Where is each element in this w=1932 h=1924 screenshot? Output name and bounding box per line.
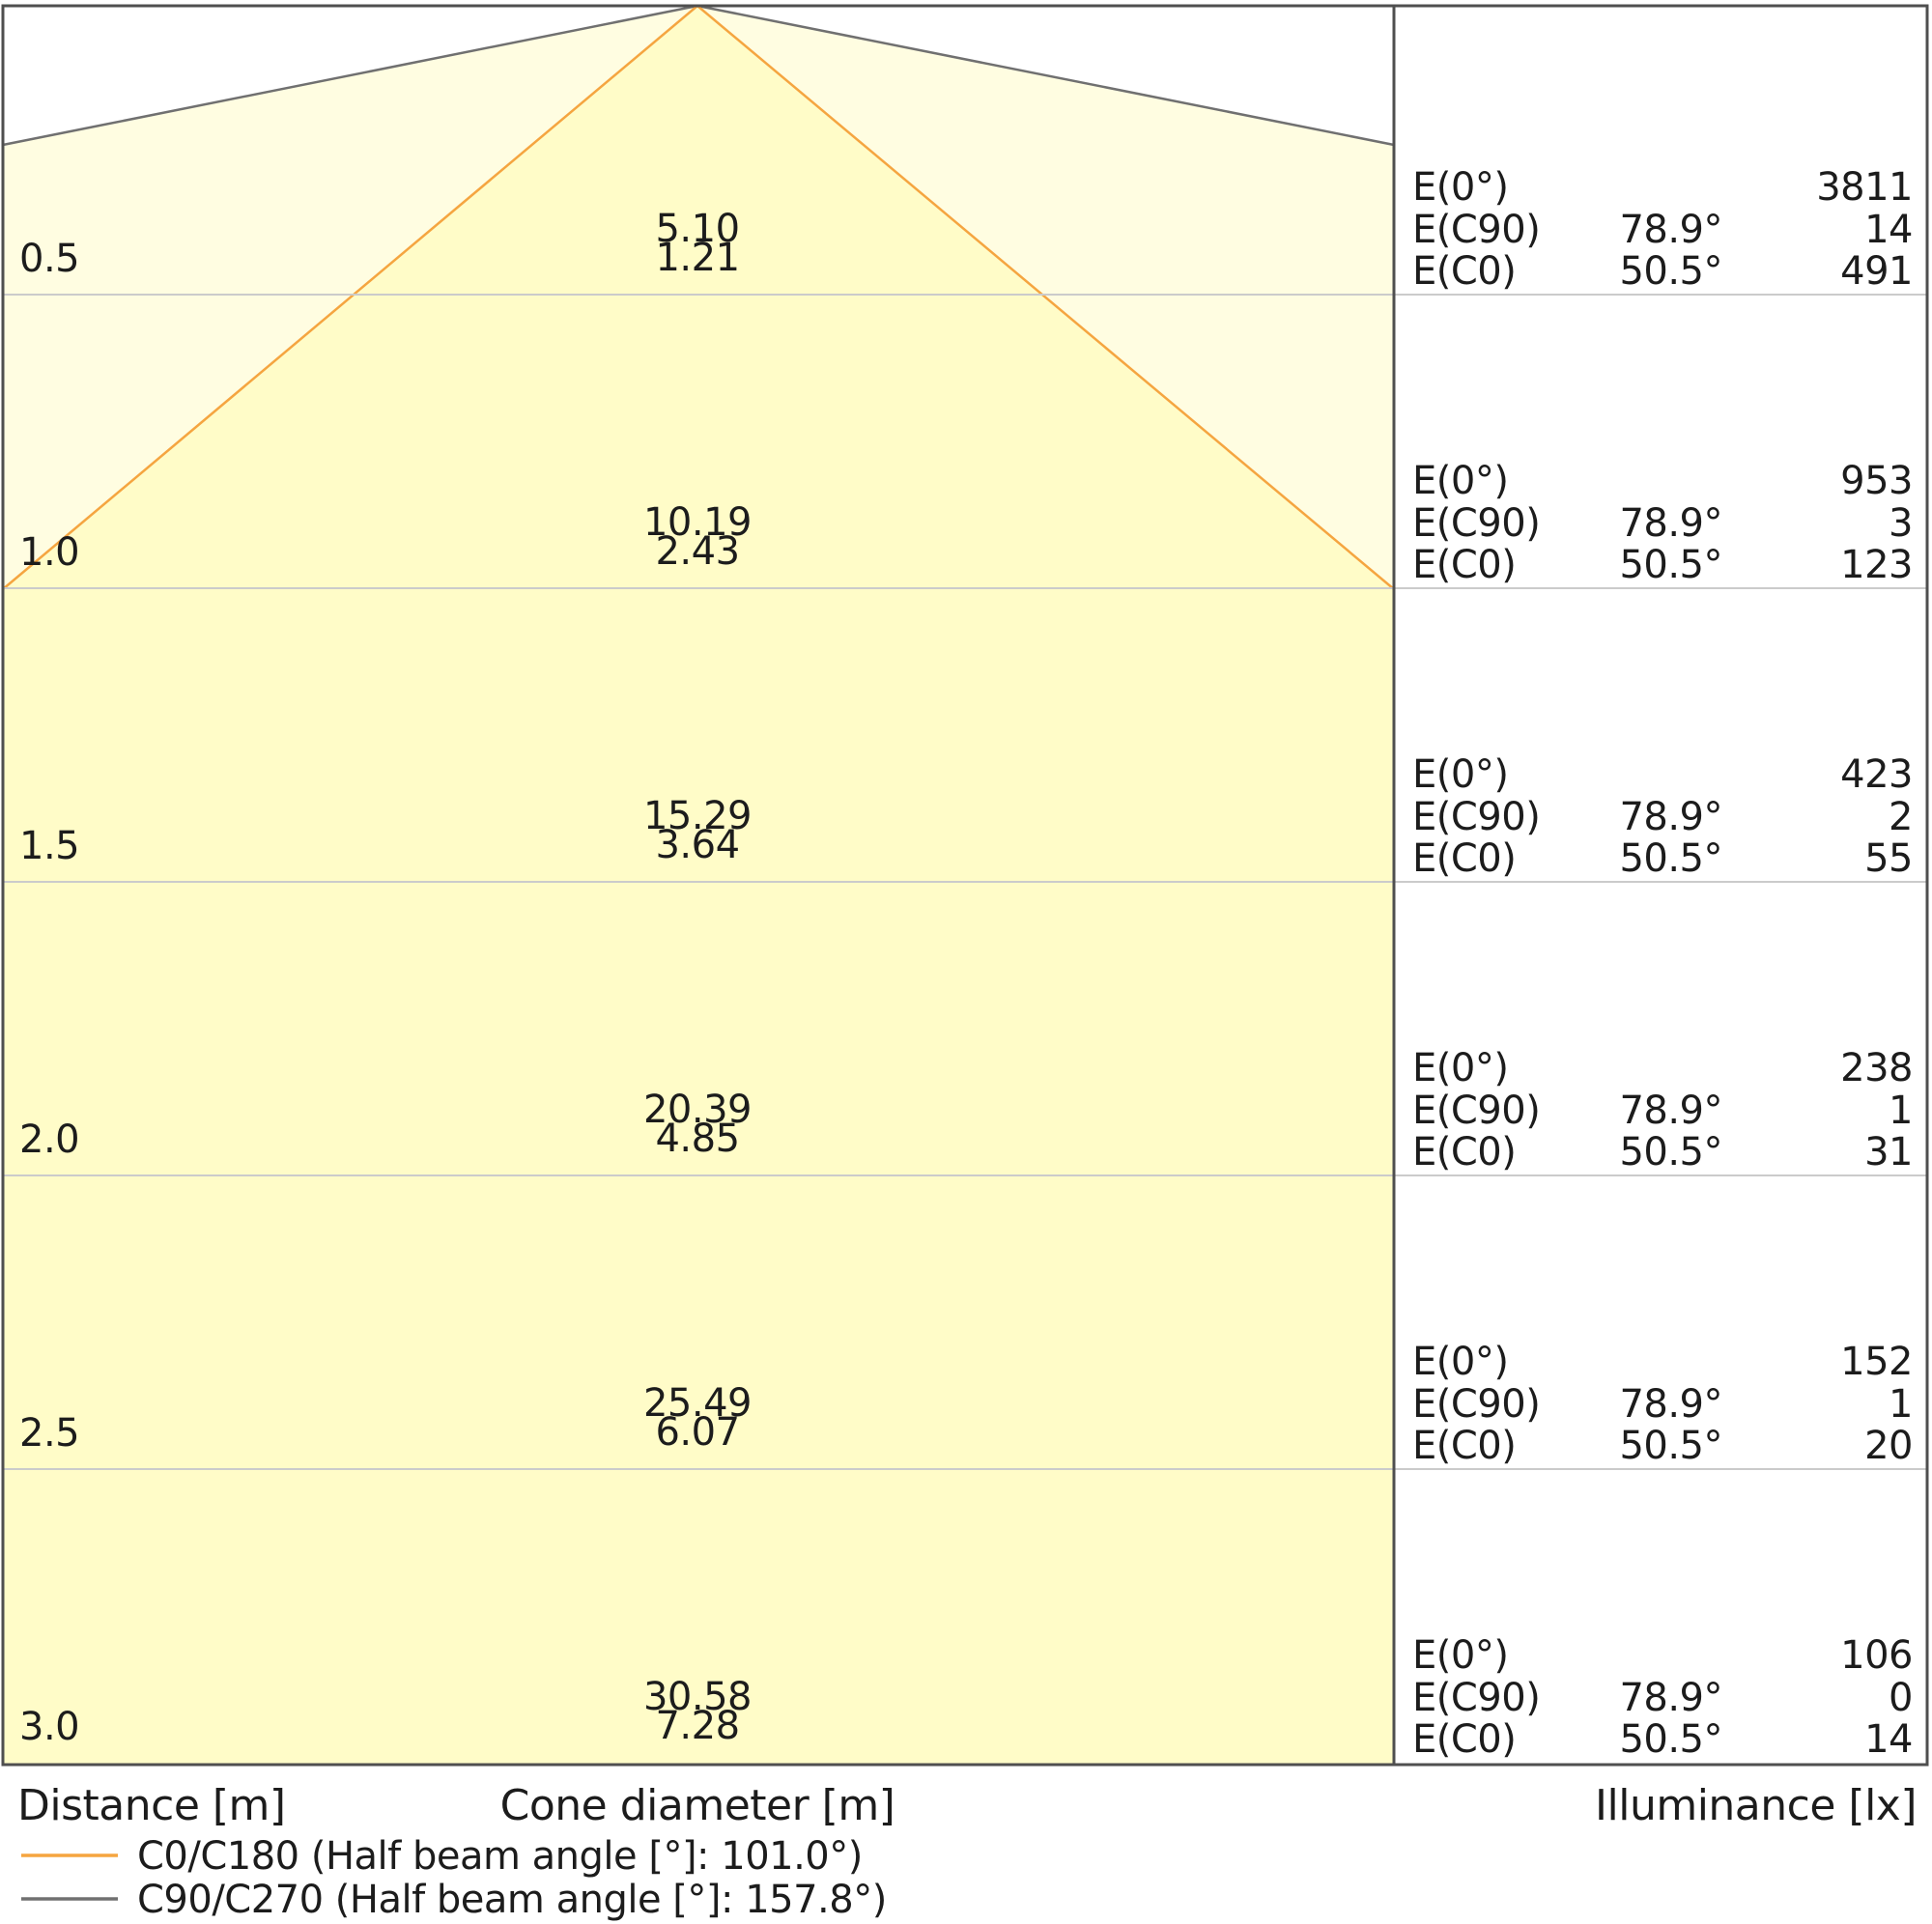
cone-diagram-canvas: 0.5 5.10 1.21 E(0°) 3811 E(C90) 78.9° 14… <box>0 0 1932 1924</box>
c0-legend-label: C0/C180 (Half beam angle [°]: 101.0°) <box>137 1834 863 1879</box>
cone-diameter-c0-value: 3.64 <box>655 823 739 867</box>
ec0-value: 491 <box>1840 249 1913 294</box>
distance-label: 1.0 <box>19 530 79 575</box>
e0-label: E(0°) <box>1412 752 1508 797</box>
ec90-label: E(C90) <box>1412 795 1540 839</box>
e0-value: 423 <box>1840 752 1913 797</box>
e0-label: E(0°) <box>1412 1046 1508 1090</box>
cone-diameter-c0-value: 7.28 <box>655 1704 739 1748</box>
ec90-angle: 78.9° <box>1619 1382 1722 1427</box>
e0-value: 238 <box>1840 1046 1913 1090</box>
ec90-label: E(C90) <box>1412 1382 1540 1427</box>
ec0-value: 31 <box>1864 1130 1913 1174</box>
legend: C0/C180 (Half beam angle [°]: 101.0°) C9… <box>21 1834 887 1922</box>
ec0-angle: 50.5° <box>1619 836 1722 881</box>
distance-label: 1.5 <box>19 824 79 868</box>
ec0-label: E(C0) <box>1412 249 1516 294</box>
ec0-value: 55 <box>1864 836 1913 881</box>
ec0-label: E(C0) <box>1412 836 1516 881</box>
ec0-label: E(C0) <box>1412 1717 1516 1762</box>
ec0-value: 14 <box>1864 1717 1913 1762</box>
distance-label: 3.0 <box>19 1705 79 1749</box>
ec90-label: E(C90) <box>1412 208 1540 252</box>
ec90-angle: 78.9° <box>1619 501 1722 546</box>
ec0-angle: 50.5° <box>1619 1130 1722 1174</box>
cone-diameter-c0-value: 6.07 <box>655 1410 739 1455</box>
ec0-angle: 50.5° <box>1619 1424 1722 1468</box>
distance-axis-label: Distance [m] <box>17 1781 286 1830</box>
ec90-label: E(C90) <box>1412 1089 1540 1133</box>
ec90-angle: 78.9° <box>1619 1089 1722 1133</box>
distance-label: 0.5 <box>19 237 79 281</box>
ec0-angle: 50.5° <box>1619 543 1722 587</box>
c90-legend-label: C90/C270 (Half beam angle [°]: 157.8°) <box>137 1878 887 1922</box>
distance-label: 2.5 <box>19 1411 79 1456</box>
ec90-label: E(C90) <box>1412 501 1540 546</box>
illuminance-axis-label: Illuminance [lx] <box>1595 1781 1917 1830</box>
light-cone-diagram: 0.5 5.10 1.21 E(0°) 3811 E(C90) 78.9° 14… <box>0 0 1932 1924</box>
ec90-value: 3 <box>1889 501 1913 546</box>
distance-label: 2.0 <box>19 1118 79 1162</box>
e0-label: E(0°) <box>1412 1633 1508 1678</box>
cone-diameter-c0-value: 1.21 <box>655 236 739 280</box>
ec90-value: 14 <box>1864 208 1913 252</box>
e0-value: 3811 <box>1816 165 1913 210</box>
ec90-value: 0 <box>1889 1676 1913 1720</box>
ec90-label: E(C90) <box>1412 1676 1540 1720</box>
ec90-value: 1 <box>1889 1089 1913 1133</box>
e0-label: E(0°) <box>1412 1340 1508 1384</box>
ec90-value: 1 <box>1889 1382 1913 1427</box>
cone-diameter-c0-value: 4.85 <box>655 1117 739 1161</box>
e0-value: 106 <box>1840 1633 1913 1678</box>
e0-value: 953 <box>1840 459 1913 503</box>
ec0-label: E(C0) <box>1412 1130 1516 1174</box>
ec0-value: 20 <box>1864 1424 1913 1468</box>
ec0-value: 123 <box>1840 543 1913 587</box>
ec0-angle: 50.5° <box>1619 249 1722 294</box>
e0-label: E(0°) <box>1412 165 1508 210</box>
e0-value: 152 <box>1840 1340 1913 1384</box>
ec0-label: E(C0) <box>1412 1424 1516 1468</box>
ec90-angle: 78.9° <box>1619 795 1722 839</box>
cone-diameter-c0-value: 2.43 <box>655 529 739 574</box>
ec0-angle: 50.5° <box>1619 1717 1722 1762</box>
e0-label: E(0°) <box>1412 459 1508 503</box>
cone-diameter-axis-label: Cone diameter [m] <box>500 1781 895 1830</box>
ec90-angle: 78.9° <box>1619 1676 1722 1720</box>
ec90-angle: 78.9° <box>1619 208 1722 252</box>
ec90-value: 2 <box>1889 795 1913 839</box>
ec0-label: E(C0) <box>1412 543 1516 587</box>
